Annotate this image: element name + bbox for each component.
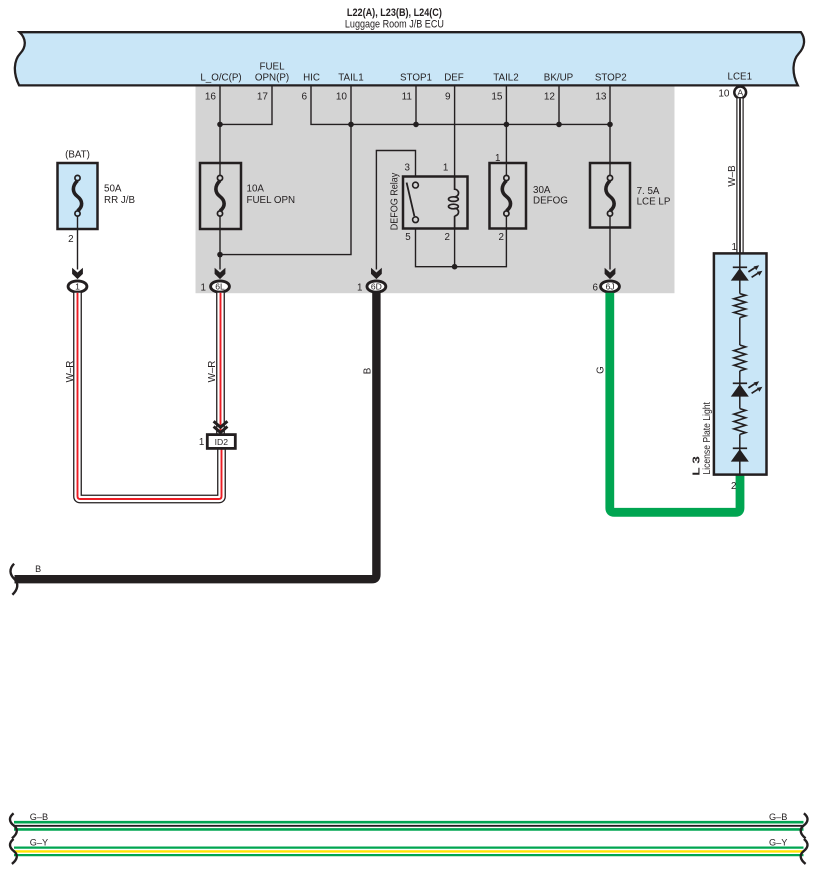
svg-text:DEFOG Relay: DEFOG Relay (390, 173, 401, 231)
svg-text:9: 9 (445, 92, 451, 103)
svg-text:G–B: G–B (30, 812, 48, 822)
svg-text:1: 1 (357, 282, 362, 293)
svg-text:OPN(P): OPN(P) (255, 72, 289, 83)
svg-text:W–B: W–B (727, 165, 738, 187)
svg-text:STOP1: STOP1 (400, 72, 432, 83)
svg-text:6: 6 (301, 92, 307, 103)
svg-text:FUEL OPN: FUEL OPN (247, 195, 296, 206)
svg-text:BK/UP: BK/UP (544, 72, 574, 83)
svg-text:DEF: DEF (444, 72, 464, 83)
svg-text:G–B: G–B (769, 812, 787, 822)
svg-text:L_O/C(P): L_O/C(P) (200, 72, 241, 83)
svg-text:1: 1 (75, 282, 80, 292)
svg-text:W–R: W–R (65, 361, 76, 383)
svg-text:DEFOG: DEFOG (533, 195, 568, 206)
svg-text:12: 12 (544, 92, 556, 103)
svg-text:5: 5 (405, 232, 411, 243)
svg-text:7. 5A: 7. 5A (637, 186, 660, 197)
svg-text:G–Y: G–Y (30, 837, 48, 847)
svg-text:10: 10 (336, 92, 348, 103)
svg-text:16: 16 (205, 92, 217, 103)
svg-text:TAIL1: TAIL1 (338, 72, 363, 83)
svg-text:50A: 50A (104, 184, 122, 195)
svg-text:HIC: HIC (303, 72, 320, 83)
svg-text:13: 13 (595, 92, 607, 103)
svg-text:6L: 6L (215, 282, 225, 292)
svg-text:STOP2: STOP2 (595, 72, 627, 83)
svg-text:Luggage Room J/B ECU: Luggage Room J/B ECU (345, 19, 444, 31)
svg-text:LCE1: LCE1 (728, 72, 753, 83)
svg-text:6J: 6J (605, 282, 614, 292)
svg-text:2: 2 (445, 232, 450, 243)
svg-text:1: 1 (495, 153, 500, 164)
svg-text:ID2: ID2 (215, 437, 229, 447)
svg-text:10A: 10A (247, 184, 265, 195)
svg-text:B: B (362, 367, 373, 374)
svg-text:2: 2 (68, 234, 73, 245)
svg-text:6: 6 (593, 282, 599, 293)
svg-text:W–R: W–R (207, 361, 218, 383)
svg-text:15: 15 (491, 92, 503, 103)
svg-text:11: 11 (402, 92, 413, 103)
svg-text:6D: 6D (371, 282, 382, 292)
svg-text:1: 1 (732, 242, 737, 253)
svg-text:10: 10 (718, 89, 730, 100)
svg-text:A: A (737, 88, 743, 98)
svg-text:17: 17 (257, 92, 269, 103)
svg-text:(BAT): (BAT) (65, 150, 90, 161)
svg-text:2: 2 (731, 481, 736, 492)
svg-text:G–Y: G–Y (769, 837, 787, 847)
svg-text:1: 1 (201, 282, 206, 293)
svg-text:2: 2 (499, 232, 504, 243)
svg-text:1: 1 (443, 162, 448, 173)
svg-text:B: B (35, 564, 41, 574)
svg-text:L22(A), L23(B), L24(C): L22(A), L23(B), L24(C) (347, 7, 442, 19)
svg-text:G: G (596, 366, 607, 374)
svg-text:1: 1 (199, 437, 204, 448)
svg-text:License Plate Light: License Plate Light (702, 402, 713, 475)
svg-text:30A: 30A (533, 185, 551, 196)
svg-text:TAIL2: TAIL2 (493, 72, 518, 83)
svg-text:LCE LP: LCE LP (637, 197, 671, 208)
svg-text:RR J/B: RR J/B (104, 195, 135, 206)
svg-text:3: 3 (405, 162, 411, 173)
svg-text:FUEL: FUEL (259, 61, 285, 72)
